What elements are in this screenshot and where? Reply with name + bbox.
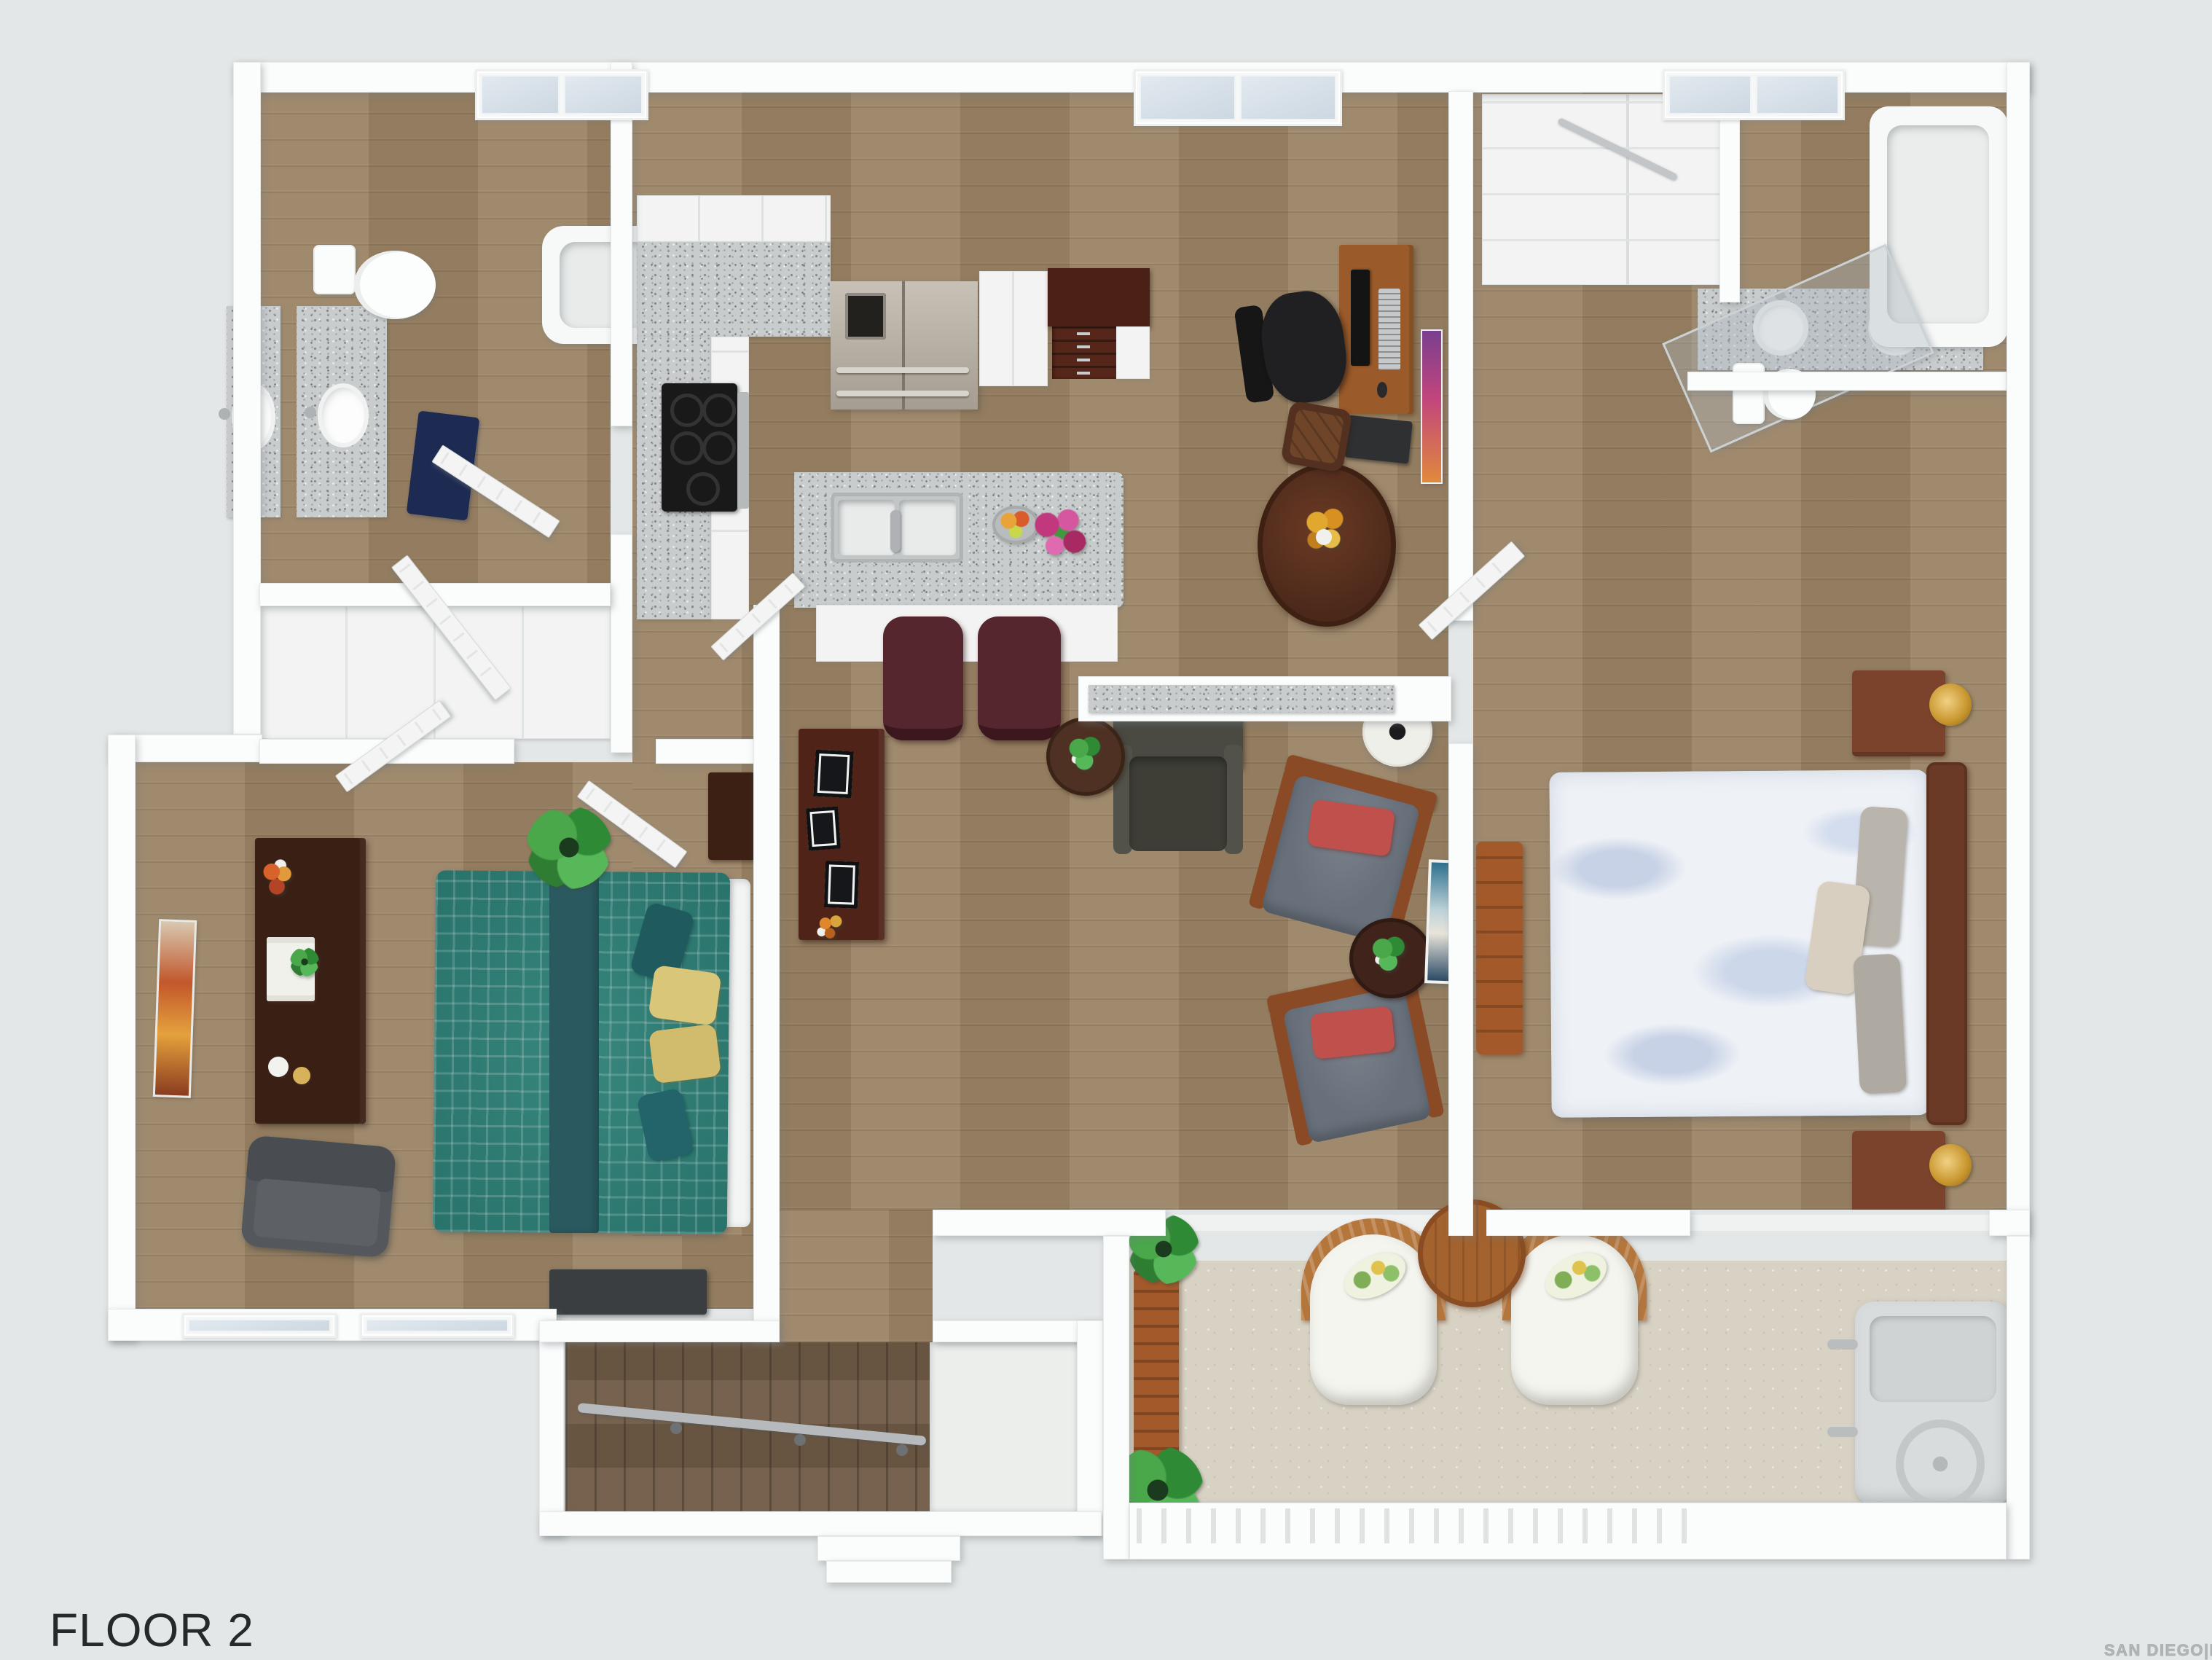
nightstand-1-lamp bbox=[1929, 684, 1972, 726]
railing-post-2 bbox=[794, 1434, 806, 1446]
console-photo-frame-1 bbox=[813, 750, 853, 799]
master-bath-window bbox=[1663, 69, 1845, 120]
sink-basin-left bbox=[838, 500, 895, 555]
sink-basin-right bbox=[899, 500, 956, 555]
recliner-seat bbox=[1129, 756, 1227, 851]
wall-master-bath-divider bbox=[1719, 91, 1740, 302]
bed2-pillow-yellow-2 bbox=[648, 1024, 721, 1084]
wall-right bbox=[2007, 62, 2030, 1236]
side-table-2-plant bbox=[1364, 930, 1411, 976]
balcony-wall-right bbox=[2007, 1236, 2030, 1559]
window-pane bbox=[1756, 75, 1839, 114]
bedroom2-window-left bbox=[182, 1313, 337, 1338]
burner-2 bbox=[702, 394, 736, 427]
wall-bath1-east-lower bbox=[611, 534, 632, 753]
stair-wall-bottom bbox=[539, 1511, 1102, 1536]
wall-master-divider-upper bbox=[1448, 91, 1473, 621]
master-pillow-gray-2 bbox=[1853, 953, 1907, 1094]
wall-master-bath-south bbox=[1687, 372, 2007, 391]
wall-master-divider-lower bbox=[1448, 743, 1473, 1236]
balcony-wall-left bbox=[1103, 1236, 1129, 1559]
wall-bedroom2-east bbox=[753, 605, 780, 1341]
mouse bbox=[1377, 382, 1387, 398]
fridge-handle-right bbox=[836, 391, 969, 396]
console-photo-frame-2 bbox=[806, 807, 841, 851]
bedroom2-wall-art bbox=[153, 919, 197, 1098]
stair-wall-top-left bbox=[539, 1320, 780, 1342]
stairs-landing bbox=[930, 1342, 1077, 1511]
window-pane bbox=[481, 75, 560, 114]
bedroom2-tv-stand bbox=[549, 1269, 707, 1315]
desk-plant bbox=[290, 947, 319, 976]
bedroom2-monstera bbox=[526, 806, 612, 889]
desk-flowers bbox=[259, 857, 294, 899]
entry-step-2 bbox=[826, 1561, 952, 1583]
kitchen-counter-top bbox=[637, 242, 831, 337]
nightstand-2-lamp bbox=[1929, 1144, 1972, 1186]
ac-unit bbox=[1855, 1301, 2011, 1506]
accent-chair-2 bbox=[1266, 966, 1446, 1152]
recliner bbox=[1113, 702, 1243, 857]
window-pane bbox=[1668, 75, 1752, 114]
bar-stool-2 bbox=[978, 616, 1061, 740]
range-edge bbox=[737, 392, 749, 509]
keyboard bbox=[1378, 289, 1400, 370]
console-photo-frame-3 bbox=[824, 861, 859, 909]
window-pane bbox=[1140, 75, 1236, 120]
master-headboard bbox=[1926, 762, 1967, 1125]
stair-wall-right bbox=[1077, 1320, 1103, 1536]
master-closet-shelves bbox=[1482, 94, 1722, 285]
window-pane bbox=[564, 75, 643, 114]
bedroom2-armchair bbox=[240, 1135, 396, 1258]
wall-living-south-2 bbox=[1486, 1210, 1690, 1236]
pony-wall-granite-cap bbox=[1089, 685, 1395, 713]
wall-living-south-1 bbox=[933, 1210, 1166, 1236]
island-faucet bbox=[890, 510, 901, 552]
armchair-seat-cushion bbox=[253, 1178, 381, 1248]
ac-top-panel bbox=[1870, 1316, 1996, 1402]
pantry-cabinet bbox=[979, 271, 1048, 386]
stair-connector-floor bbox=[780, 1210, 933, 1342]
bed2-runner bbox=[549, 872, 599, 1233]
window-pane bbox=[1240, 75, 1336, 120]
dining-vase bbox=[1316, 529, 1332, 545]
wall-left-upper bbox=[233, 62, 261, 735]
bath1-faucet-right bbox=[305, 407, 316, 418]
window-pane bbox=[366, 1319, 509, 1332]
bedroom2-endtable bbox=[708, 772, 755, 860]
fridge-dispenser bbox=[845, 293, 886, 340]
stair-wall-left bbox=[539, 1320, 564, 1536]
mls-watermark: SAN DIEGO|MLS bbox=[2104, 1641, 2212, 1660]
burner-3 bbox=[670, 431, 704, 465]
ac-fan bbox=[1896, 1420, 1985, 1508]
railing-post-3 bbox=[896, 1444, 908, 1456]
desk-candle-white bbox=[268, 1057, 289, 1077]
desk-candle-gold bbox=[293, 1067, 310, 1084]
ac-pipe-2 bbox=[1827, 1427, 1858, 1437]
ac-pipe-1 bbox=[1827, 1339, 1858, 1350]
island-base bbox=[816, 605, 1118, 662]
chair2-red-pillow bbox=[1310, 1006, 1396, 1059]
floor-label: FLOOR 2 bbox=[50, 1603, 254, 1657]
cooktop bbox=[662, 383, 737, 512]
island-flowers bbox=[1027, 501, 1093, 568]
drawer-handles bbox=[1077, 329, 1090, 375]
burner-1 bbox=[670, 394, 704, 427]
cpu-tower bbox=[1344, 415, 1413, 464]
toilet-bowl bbox=[354, 251, 436, 319]
bath1-sink-right bbox=[318, 383, 369, 447]
bath1-faucet-left bbox=[219, 408, 230, 420]
bedroom2-window-right bbox=[360, 1313, 514, 1338]
burner-4 bbox=[702, 431, 736, 465]
fridge-handle-left bbox=[836, 367, 969, 373]
side-table-1-plant bbox=[1061, 730, 1106, 775]
console-flowers bbox=[810, 909, 848, 944]
dining-chair bbox=[1280, 400, 1353, 473]
bath1-window bbox=[475, 69, 648, 120]
toilet-tank bbox=[313, 245, 356, 294]
entry-cabinet-drawers bbox=[1052, 326, 1116, 379]
kitchen-upper-cabinets bbox=[637, 195, 831, 242]
dining-window bbox=[1134, 69, 1342, 126]
bed-bench bbox=[1476, 842, 1523, 1054]
bar-stool-1 bbox=[883, 616, 963, 740]
wall-left-lower bbox=[108, 735, 136, 1341]
fridge bbox=[831, 281, 978, 410]
entry-step-1 bbox=[817, 1536, 960, 1561]
dining-wall-art bbox=[1421, 329, 1443, 484]
entry-cabinet-cubby bbox=[1116, 326, 1150, 379]
railing-post-1 bbox=[670, 1422, 682, 1434]
master-slider-sill bbox=[1690, 1210, 1989, 1236]
floorplan-canvas: FLOOR 2 SAN DIEGO|MLS bbox=[0, 0, 2212, 1655]
office-chair bbox=[1231, 273, 1359, 425]
monitor bbox=[1351, 270, 1370, 366]
burner-5 bbox=[686, 472, 720, 506]
railing-slats bbox=[1137, 1508, 1705, 1543]
balcony-railing bbox=[1129, 1503, 2007, 1559]
window-pane bbox=[188, 1319, 331, 1332]
entry-cabinet-top bbox=[1048, 268, 1150, 326]
dining-chair-seat bbox=[1289, 409, 1344, 464]
bed2-pillow-yellow-1 bbox=[648, 965, 721, 1026]
balcony-bench bbox=[1134, 1269, 1179, 1465]
wall-living-south-3 bbox=[1989, 1210, 2030, 1236]
